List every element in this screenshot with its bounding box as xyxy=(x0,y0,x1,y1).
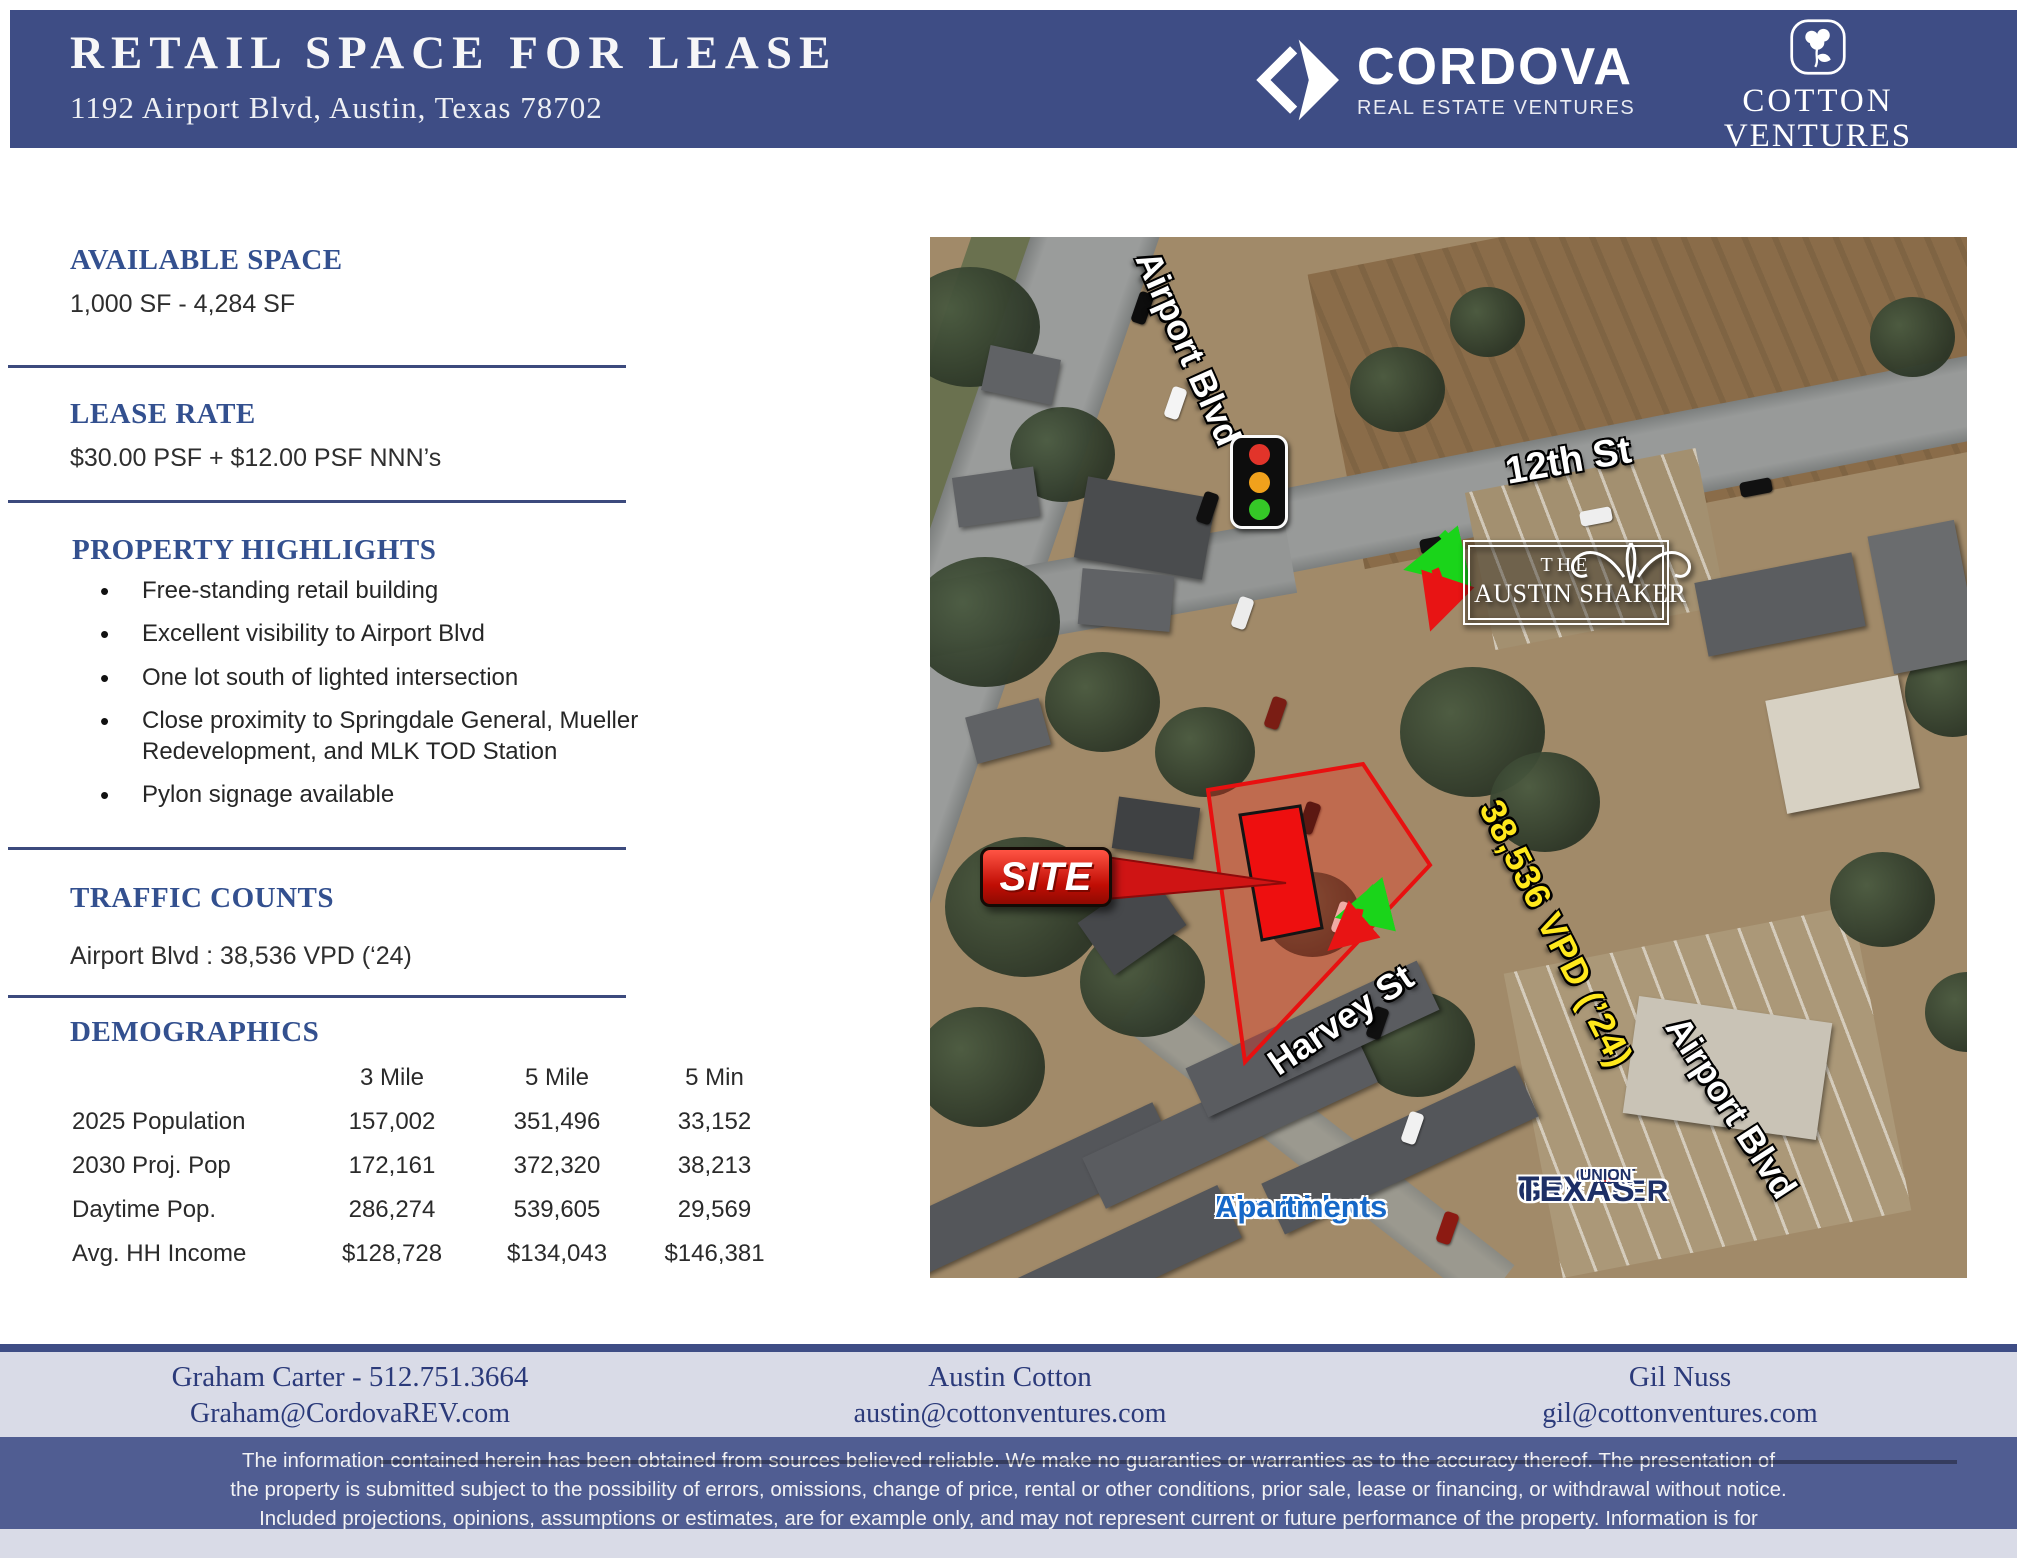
amber-light xyxy=(1249,472,1270,493)
cordova-name: CORDOVA xyxy=(1357,41,1635,93)
demo-cell: 157,002 xyxy=(307,1108,477,1136)
cordova-tagline: REAL ESTATE VENTURES xyxy=(1357,97,1635,120)
highlight-item: Close proximity to Springdale General, M… xyxy=(100,706,645,767)
contact-graham: Graham Carter - 512.751.3664 Graham@Cord… xyxy=(80,1361,620,1430)
elm-ridge-line2: Apartments xyxy=(1215,1189,1387,1225)
demographics-heading: DEMOGRAPHICS xyxy=(70,1016,319,1049)
demo-col-header: 5 Mile xyxy=(477,1064,637,1092)
demo-col-header: 5 Min xyxy=(637,1064,792,1092)
cotton-boll-icon xyxy=(1789,18,1847,76)
demo-row-label: 2030 Proj. Pop xyxy=(72,1152,307,1180)
section-divider xyxy=(8,500,626,503)
demo-cell: $134,043 xyxy=(477,1240,637,1268)
available-space-value: 1,000 SF - 4,284 SF xyxy=(70,290,295,319)
site-parcel-overlay xyxy=(930,237,1967,1278)
highlight-item: Excellent visibility to Airport Blvd xyxy=(100,619,645,649)
highlight-item: One lot south of lighted intersection xyxy=(100,663,645,693)
demo-row-label: Daytime Pop. xyxy=(72,1196,307,1224)
contact-email: austin@cottonventures.com xyxy=(730,1398,1290,1430)
property-highlights-list: Free-standing retail building Excellent … xyxy=(100,576,645,824)
available-space-heading: AVAILABLE SPACE xyxy=(70,244,343,277)
section-divider xyxy=(8,995,626,998)
demo-cell: 351,496 xyxy=(477,1108,637,1136)
lease-rate-value: $30.00 PSF + $12.00 PSF NNN’s xyxy=(70,444,441,473)
austin-shaker-logo: THE AUSTIN SHAKER xyxy=(1468,539,1664,620)
traffic-counts-heading: TRAFFIC COUNTS xyxy=(70,882,334,915)
section-divider xyxy=(8,365,626,368)
demographics-table: 3 Mile 5 Mile 5 Min 2025 Population 157,… xyxy=(72,1056,792,1276)
greater-texas-logo: GREATER TEXAS CREDIT UNION xyxy=(1518,1175,1693,1176)
gt-union: UNION xyxy=(1580,1167,1632,1185)
demo-cell: 286,274 xyxy=(307,1196,477,1224)
contact-email: gil@cottonventures.com xyxy=(1420,1398,1940,1430)
cordova-diamond-icon xyxy=(1255,38,1339,122)
contact-email: Graham@CordovaREV.com xyxy=(80,1398,620,1430)
shaker-flourish-icon xyxy=(1566,539,1696,587)
highlight-item: Pylon signage available xyxy=(100,780,645,810)
contact-name: Austin Cotton xyxy=(730,1361,1290,1394)
green-arrow xyxy=(1434,533,1450,563)
demo-row-label: 2025 Population xyxy=(72,1108,307,1136)
contact-austin: Austin Cotton austin@cottonventures.com xyxy=(730,1361,1290,1430)
lease-rate-heading: LEASE RATE xyxy=(70,398,256,431)
contact-name-phone: Graham Carter - 512.751.3664 xyxy=(80,1361,620,1394)
cotton-ventures-logo: COTTON VENTURES xyxy=(1703,18,1933,155)
red-light xyxy=(1249,444,1270,465)
highlight-item: Free-standing retail building xyxy=(100,576,645,606)
aerial-map: Airport Blvd 12th St 38,536 VPD (’24) Ha… xyxy=(930,237,1967,1278)
header-banner: RETAIL SPACE FOR LEASE 1192 Airport Blvd… xyxy=(10,10,2017,148)
property-address: 1192 Airport Blvd, Austin, Texas 78702 xyxy=(70,90,603,126)
page-title: RETAIL SPACE FOR LEASE xyxy=(70,26,837,80)
demo-cell: 372,320 xyxy=(477,1152,637,1180)
bottom-strip xyxy=(0,1529,2017,1558)
property-highlights-heading: PROPERTY HIGHLIGHTS xyxy=(72,534,436,567)
disclaimer-bar: The information contained herein has bee… xyxy=(0,1437,2017,1529)
red-arrow xyxy=(1435,569,1441,605)
cordova-logo: CORDOVA REAL ESTATE VENTURES xyxy=(1255,38,1635,122)
cordova-wordmark: CORDOVA REAL ESTATE VENTURES xyxy=(1357,41,1635,120)
site-callout: SITE xyxy=(980,847,1112,907)
section-divider xyxy=(8,847,626,850)
contact-gil: Gil Nuss gil@cottonventures.com xyxy=(1420,1361,1940,1430)
flyer-page: RETAIL SPACE FOR LEASE 1192 Airport Blvd… xyxy=(0,0,2017,1558)
cotton-ventures-line2: VENTURES xyxy=(1703,118,1933,155)
demo-cell: 29,569 xyxy=(637,1196,792,1224)
green-light xyxy=(1249,499,1270,520)
demo-col-header: 3 Mile xyxy=(307,1064,477,1092)
footer-divider xyxy=(0,1344,2017,1352)
scan-artifact-line xyxy=(380,1460,1957,1464)
demo-cell: $128,728 xyxy=(307,1240,477,1268)
contact-name: Gil Nuss xyxy=(1420,1361,1940,1394)
demo-cell: 539,605 xyxy=(477,1196,637,1224)
demo-row-label: Avg. HH Income xyxy=(72,1240,307,1268)
demo-cell: 33,152 xyxy=(637,1108,792,1136)
demo-cell: 172,161 xyxy=(307,1152,477,1180)
demo-cell: $146,381 xyxy=(637,1240,792,1268)
traffic-light-icon xyxy=(1230,435,1288,529)
cotton-ventures-line1: COTTON xyxy=(1703,83,1933,120)
traffic-counts-value: Airport Blvd : 38,536 VPD (‘24) xyxy=(70,942,412,971)
demo-cell: 38,213 xyxy=(637,1152,792,1180)
